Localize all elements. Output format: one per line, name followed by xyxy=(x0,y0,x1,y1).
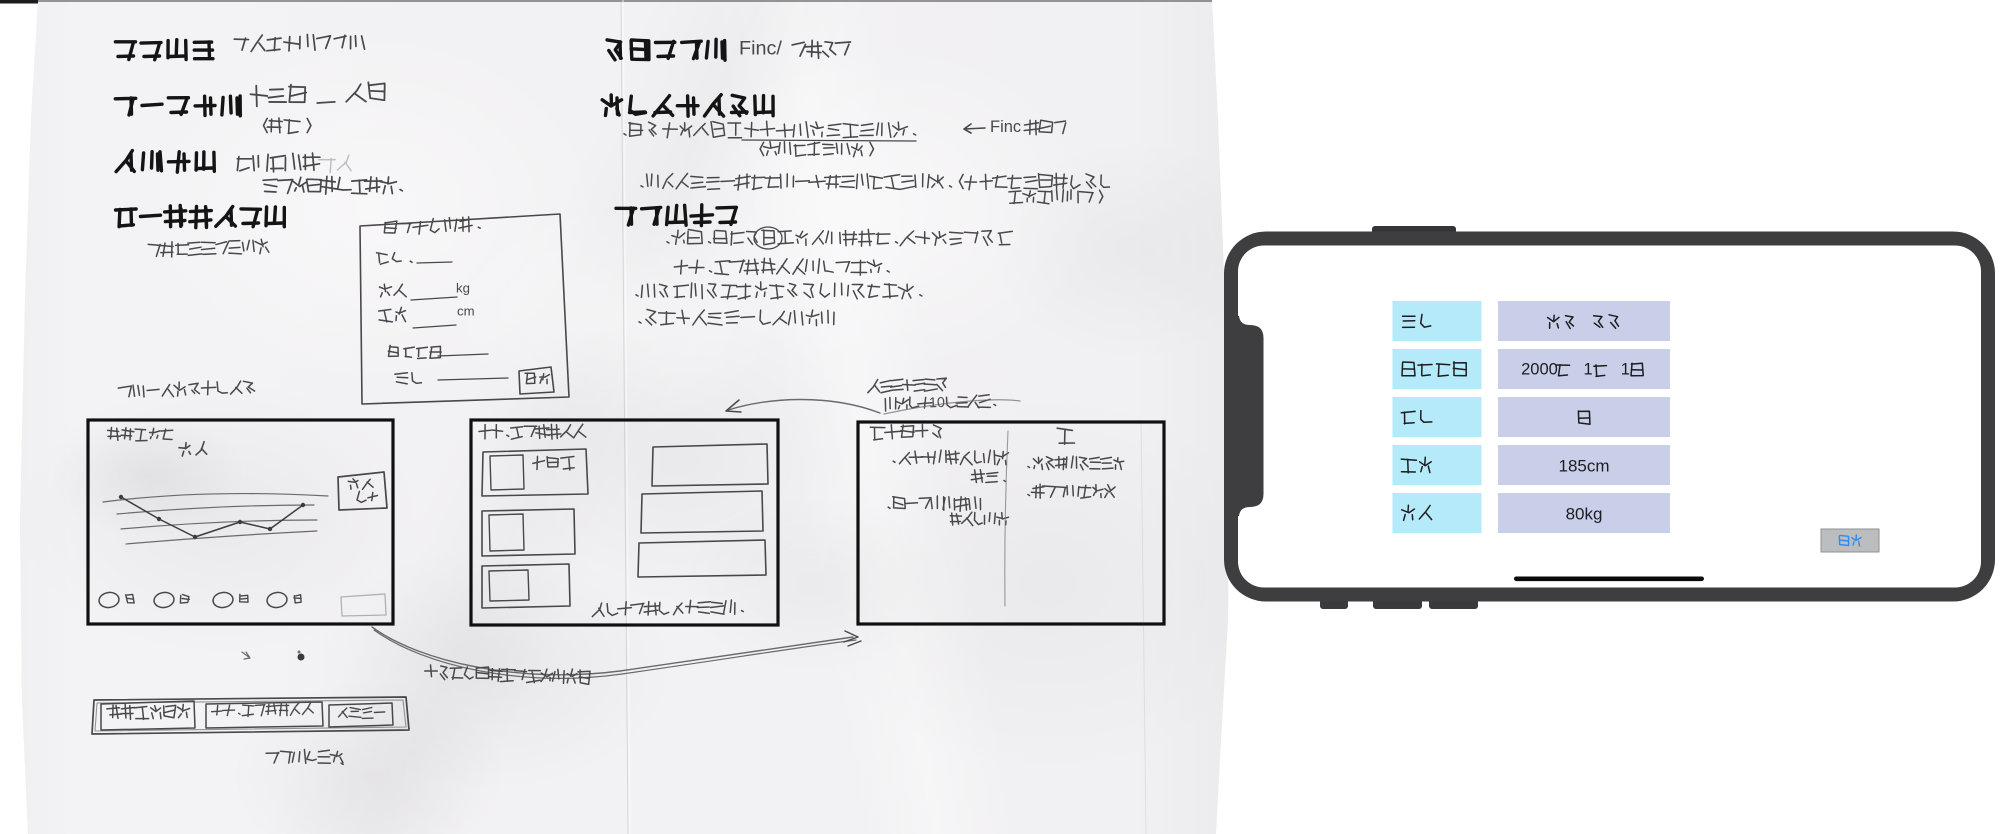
svg-text:80kg: 80kg xyxy=(1566,505,1603,524)
svg-text:Finc/: Finc/ xyxy=(739,37,782,59)
svg-text:cm: cm xyxy=(457,304,475,319)
svg-text:2000: 2000 xyxy=(1521,360,1558,378)
svg-text:1: 1 xyxy=(1621,360,1630,378)
svg-text:10: 10 xyxy=(929,395,945,412)
svg-text:1: 1 xyxy=(1584,360,1593,378)
svg-text:kg: kg xyxy=(456,281,470,296)
svg-text:185cm: 185cm xyxy=(1558,457,1609,476)
svg-text:Finc: Finc xyxy=(990,118,1021,136)
